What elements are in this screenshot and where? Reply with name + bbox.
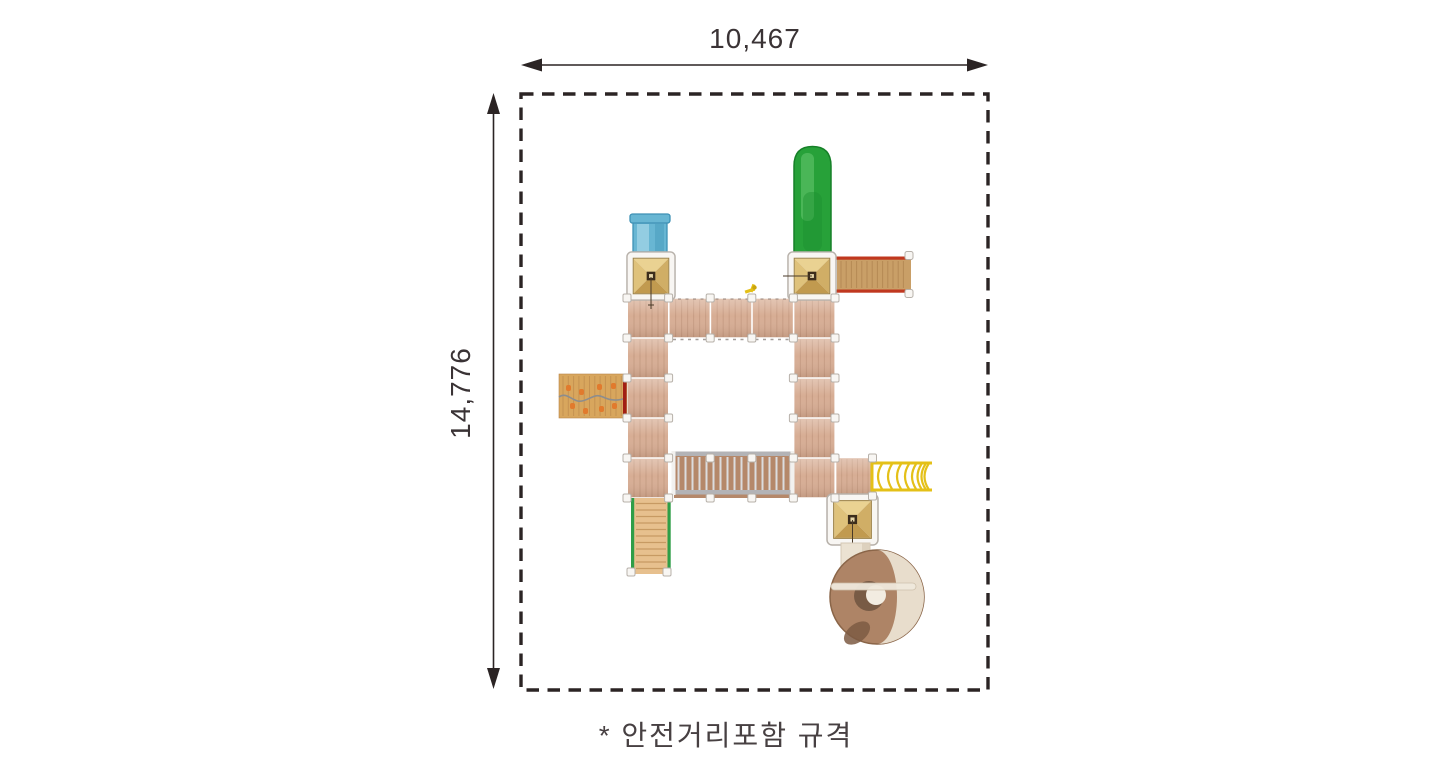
deck-cell	[753, 299, 793, 337]
deck-cell-east	[836, 458, 871, 495]
deck-cell	[794, 299, 834, 337]
bridge-rail	[674, 490, 792, 495]
climbing-wall	[559, 374, 627, 418]
straight-slide-blue	[630, 214, 670, 253]
width-dimension-label: 10,467	[600, 23, 910, 55]
suspension-bridge	[672, 451, 795, 498]
stairs	[627, 498, 671, 576]
deck-cell	[794, 379, 834, 417]
yellow-accessory	[745, 284, 757, 294]
monkey-bars-yellow	[871, 461, 933, 492]
bridge-rail	[674, 452, 792, 457]
stair-rail	[668, 498, 671, 575]
deck-cell	[628, 459, 668, 497]
playground-plan-svg	[0, 0, 1442, 778]
ramp-rail	[836, 290, 912, 293]
deck-cell	[794, 419, 834, 457]
arrow-up-icon	[487, 93, 500, 114]
playground-plan-page: 10,467 14,776 * 안전거리포함 규격	[0, 0, 1442, 778]
spiral-tube-slide	[830, 543, 924, 649]
tube-slide-green	[794, 147, 831, 256]
deck-cell	[711, 299, 751, 337]
deck-cell	[794, 339, 834, 377]
deck-cell	[670, 299, 710, 337]
deck-cell	[628, 379, 668, 417]
arrow-right-icon	[967, 59, 988, 72]
arrow-down-icon	[487, 668, 500, 689]
deck-cell	[628, 339, 668, 377]
wooden-ramp	[836, 252, 913, 298]
arrow-left-icon	[521, 59, 542, 72]
deck-cell	[794, 459, 834, 497]
deck-cell	[628, 419, 668, 457]
dimension-arrow-top	[521, 59, 988, 72]
stair-rail	[631, 498, 634, 575]
safety-note: * 안전거리포함 규격	[526, 714, 926, 754]
ramp-rail	[836, 257, 912, 260]
height-dimension-label: 14,776	[445, 312, 477, 474]
dimension-arrow-left	[487, 93, 500, 689]
